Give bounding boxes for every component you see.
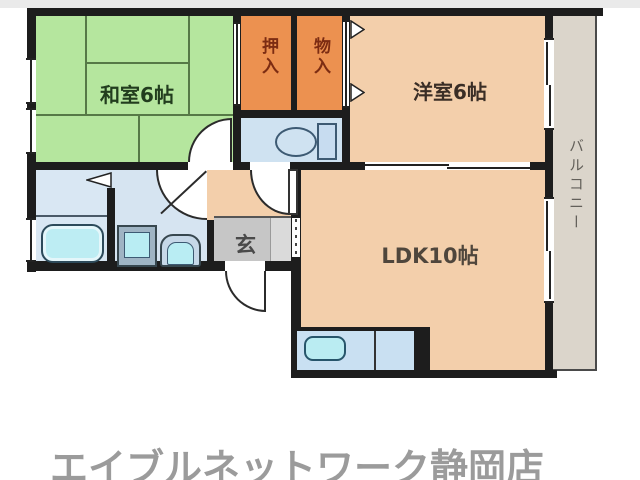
- room-label-washitsu: 和室6帖: [57, 79, 217, 108]
- door-swing-triangle-icon: [350, 83, 365, 102]
- window-bathroom: [26, 218, 36, 262]
- wall-closet-divider: [291, 8, 297, 116]
- room-label-genkan: 玄: [235, 229, 256, 259]
- ldk-doorway-dashes: [295, 219, 297, 256]
- tatami-line: [138, 114, 140, 162]
- window-sash-line: [546, 42, 548, 85]
- top-margin-strip: [0, 0, 640, 8]
- window-ldk-balcony: [544, 197, 554, 303]
- window-yoshitsu-balcony: [544, 38, 554, 130]
- kitchen-sink-icon: [304, 336, 346, 361]
- sliding-panel-line: [365, 164, 449, 166]
- wall-washitsu-bottom: [27, 162, 188, 170]
- room-label-monoire: 物入: [308, 37, 333, 77]
- vanity-sink-icon: [160, 234, 201, 267]
- genkan-edge-line: [214, 216, 291, 218]
- tatami-line: [36, 114, 233, 116]
- sliding-door-line: [236, 24, 238, 104]
- window-sash-line: [549, 85, 551, 126]
- entrance-door-arc: [225, 271, 266, 312]
- sink-bowl: [167, 242, 194, 265]
- wall-bath-divider: [107, 188, 115, 265]
- window-glass-line: [30, 220, 32, 260]
- wall-washroom-right: [207, 220, 214, 265]
- washing-machine-icon: [117, 225, 157, 267]
- bathtub-icon: [41, 224, 104, 263]
- room-label-oshiire: 押入: [256, 37, 281, 77]
- kitchen-counter-divider: [374, 331, 376, 370]
- toilet-door-leaf: [288, 169, 298, 215]
- sliding-door-line: [345, 22, 347, 106]
- wall-top: [27, 8, 603, 16]
- entrance-door-opening: [225, 261, 265, 271]
- toilet-door-opening: [250, 162, 290, 170]
- bathroom-door-triangle-icon: [86, 172, 112, 188]
- sliding-panel-line: [447, 167, 530, 169]
- window-sash-line: [546, 201, 548, 251]
- room-label-ldk: LDK10帖: [350, 240, 510, 270]
- oshiire-sliding-door: [234, 22, 240, 106]
- window-washitsu-upper: [26, 58, 36, 104]
- ldk-doorway: [292, 218, 300, 257]
- window-glass-line: [30, 110, 32, 152]
- door-swing-triangle-icon: [350, 20, 365, 39]
- tatami-line: [85, 62, 190, 64]
- wall-closets-bottom: [233, 110, 350, 118]
- sliding-partition-yoshitsu-ldk: [365, 162, 530, 170]
- washitsu-door-opening: [188, 162, 233, 170]
- room-label-balcony: バルコニー: [566, 138, 587, 233]
- window-glass-line: [30, 60, 32, 102]
- room-label-yoshitsu: 洋室6帖: [370, 76, 530, 105]
- washing-machine-tub: [124, 232, 150, 258]
- toilet-icon: [275, 127, 317, 157]
- bathtub-area-divider: [36, 215, 107, 217]
- genkan-step: [270, 218, 291, 261]
- floorplan-canvas: 和室6帖 押入 物入 洋室6帖 LDK10帖 玄 バルコニー エイブルネットワー…: [0, 0, 640, 480]
- window-sash-line: [549, 251, 551, 299]
- store-name: エイブルネットワーク静岡店: [50, 437, 544, 480]
- window-washitsu-lower: [26, 108, 36, 154]
- monoire-folding-door: [343, 20, 349, 108]
- toilet-tank-icon: [317, 123, 337, 160]
